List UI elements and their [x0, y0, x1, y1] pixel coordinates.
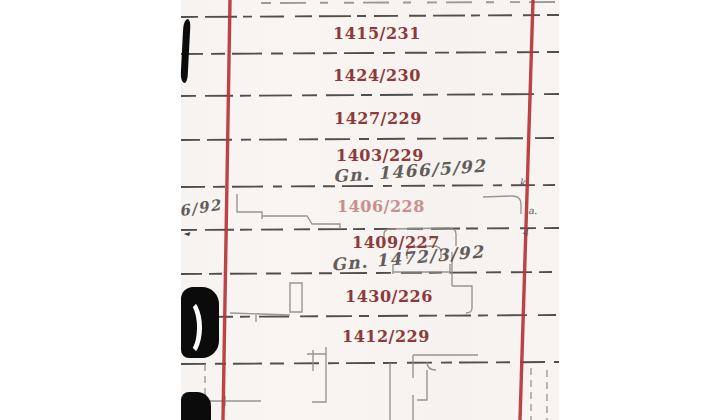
- parcel-label-1424-230: 1424/230: [333, 67, 421, 84]
- parcel-label-1430-226: 1430/226: [345, 288, 433, 305]
- left-red-boundary-line: [223, 0, 230, 420]
- margin-mark-right-low: 4: [522, 227, 528, 238]
- page: 1415/231 1424/230 1427/229 1403/229 1406…: [0, 0, 720, 420]
- pencil-dashed-lines: [205, 364, 547, 420]
- parcel-label-1406-228: 1406/228: [337, 198, 425, 215]
- margin-mark-right-mid: a.: [528, 205, 537, 216]
- parcel-label-1412-229: 1412/229: [342, 328, 430, 345]
- black-ink-mark-white-crescent: [173, 298, 202, 357]
- black-ink-mark-bottom: [181, 392, 211, 420]
- scanned-map-sheet: 1415/231 1424/230 1427/229 1403/229 1406…: [181, 0, 559, 420]
- parcel-label-1427-229: 1427/229: [334, 110, 422, 127]
- margin-mark-left-arrow: ◄: [183, 229, 189, 238]
- margin-mark-right-top: k: [519, 177, 525, 188]
- parcel-label-1415-231: 1415/231: [333, 25, 421, 42]
- black-ink-mark-middle: [181, 287, 219, 358]
